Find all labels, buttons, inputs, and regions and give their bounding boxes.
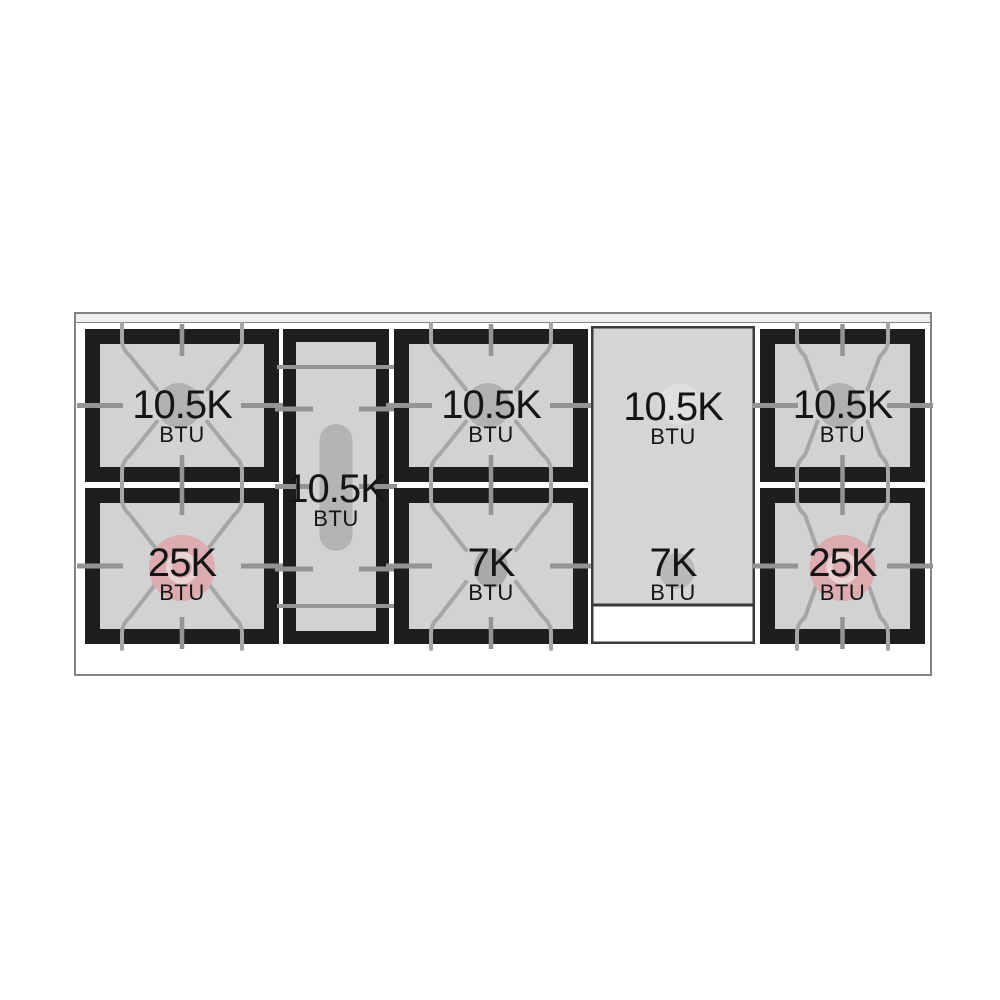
burner-right-rear: 10.5K BTU — [760, 329, 925, 482]
cooktop-back-trim — [76, 314, 930, 323]
burner-center-oval: 10.5K BTU — [283, 329, 389, 644]
burner-grate — [394, 329, 588, 482]
burner-grate — [85, 488, 279, 644]
cooktop-surface: 10.5K BTU 25K BTU 10.5K BTU 10.5K BTU 7K… — [74, 312, 932, 676]
burner-grate — [760, 329, 925, 482]
griddle-plate — [591, 326, 755, 644]
griddle: 10.5K BTU 7K BTU — [591, 326, 755, 644]
burner-middle-front: 7K BTU — [394, 488, 588, 644]
burner-grate — [283, 329, 389, 644]
burner-grate — [85, 329, 279, 482]
burner-grate — [760, 488, 925, 644]
burner-left-rear: 10.5K BTU — [85, 329, 279, 482]
burner-grate — [394, 488, 588, 644]
burner-left-front: 25K BTU — [85, 488, 279, 644]
burner-middle-rear: 10.5K BTU — [394, 329, 588, 482]
burner-right-front: 25K BTU — [760, 488, 925, 644]
